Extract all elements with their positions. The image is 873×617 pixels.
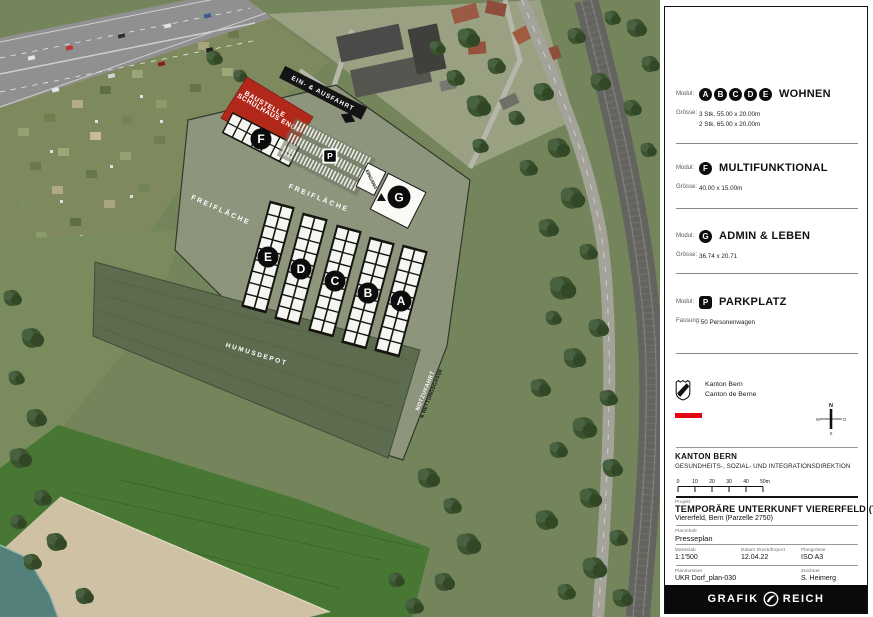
size-line: 50 Personenwagen [701,318,755,328]
brand-right: REICH [783,593,825,605]
legend-panel: Modul: A B C D E WOHNEN Grösse: 3 Stk. 5… [664,6,868,614]
plan-number-label: Plannummer [675,568,703,573]
titleblock-divider [676,565,858,566]
author-value: S. Heimerg [801,575,836,582]
badge-e: E [759,88,772,101]
svg-text:B: B [364,286,373,300]
modul-label: Modul: [676,165,699,171]
content-label: Planinhalt [675,528,697,533]
author-label: Zeichner [801,568,820,573]
project-subtitle: Viererfeld, Bern (Parzelle 2750) [675,515,773,522]
scale-bar: 0 10 20 30 40 50m [675,477,785,494]
scale-value: 1:1'500 [675,554,698,561]
badge-d: D [744,88,757,101]
svg-text:E: E [264,250,272,264]
panel-divider [676,447,858,448]
svg-text:O: O [843,417,847,422]
fassung-label: Fassung: [676,318,701,328]
size-line: 40.00 x 15.00m [699,184,742,194]
svg-text:20: 20 [709,479,715,485]
svg-text:P: P [327,151,333,161]
grafikreich-logo-icon [763,591,779,607]
kanton-bern-line1: Kanton Bern [705,380,756,390]
module-marker-e: E [258,247,279,268]
agency-department: GESUNDHEITS-, SOZIAL- UND INTEGRATIONSDI… [675,463,850,470]
section-title-multifunktional: MULTIFUNKTIONAL [719,162,828,174]
section-title-parkplatz: PARKPLATZ [719,296,787,308]
plan-number-value: UKR Dorf_plan-030 [675,575,736,582]
groesse-label: Grösse: [676,184,699,194]
svg-text:S: S [830,431,833,436]
module-marker-f: F [251,129,272,150]
badge-p: P [699,296,712,309]
kanton-bern-line2: Canton de Berne [705,390,756,400]
date-label: Datum Druck/Export [741,547,785,552]
svg-text:40: 40 [743,479,749,485]
modul-label: Modul: [676,233,699,239]
titleblock-divider [676,525,858,526]
legend-section-admin: Modul: G ADMIN & LEBEN Grösse: 36.74 x 2… [676,229,858,262]
agency-name: KANTON BERN [675,452,737,461]
size-line: 2 Stk. 65.00 x 20.00m [699,120,760,130]
legend-section-multifunktional: Modul: F MULTIFUNKTIONAL Grösse: 40.00 x… [676,161,858,194]
site-plan-map: BAUSTELLE SCHULHAUS ENGE EIN- & AUSFAHRT [0,0,660,617]
kanton-red-bar [675,413,702,418]
size-line: 36.74 x 20.71 [699,252,737,262]
brand-left: GRAFIK [708,593,759,605]
titleblock-divider [676,544,858,545]
kanton-bern-wordmark: Kanton Bern Canton de Berne [705,380,756,400]
badge-g: G [699,230,712,243]
footer-brand-bar: GRAFIK REICH [665,585,867,613]
legend-divider [676,143,858,144]
module-marker-b: B [358,283,379,304]
size-label: Plangrösse [801,547,826,552]
badge-c: C [729,88,742,101]
module-marker-a: A [391,291,412,312]
svg-text:10: 10 [692,479,698,485]
groesse-label: Grösse: [676,252,699,262]
content-value: Presseplan [675,534,713,543]
svg-text:0: 0 [677,479,680,485]
svg-text:N: N [829,403,833,409]
modul-label: Modul: [676,91,699,97]
badge-a: A [699,88,712,101]
legend-divider [676,208,858,209]
svg-text:A: A [397,294,406,308]
legend-divider [676,353,858,354]
legend-section-wohnen: Modul: A B C D E WOHNEN Grösse: 3 Stk. 5… [676,87,858,130]
section-title-wohnen: WOHNEN [779,88,831,100]
module-marker-c: C [325,271,346,292]
compass-icon: N W O S [815,401,847,437]
svg-text:W: W [816,417,820,422]
module-marker-d: D [291,259,312,280]
svg-text:50m: 50m [760,479,770,485]
size-line: 3 Stk. 55.00 x 20.00m [699,110,760,120]
legend-section-parkplatz: Modul: P PARKPLATZ Fassung: 50 Personenw… [676,295,858,328]
project-title: TEMPORÄRE UNTERKUNFT VIERERFELD (TUV) [675,504,873,514]
svg-text:D: D [297,262,306,276]
badge-b: B [714,88,727,101]
module-marker-g: G [388,186,411,209]
svg-text:G: G [394,190,403,204]
badge-f: F [699,162,712,175]
scale-label: Massstab [675,547,696,552]
svg-text:F: F [257,132,264,146]
kanton-bern-crest-icon [675,379,691,401]
legend-divider [676,273,858,274]
section-title-admin: ADMIN & LEBEN [719,230,810,242]
size-value: ISO A3 [801,554,823,561]
groesse-label: Grösse: [676,110,699,130]
titleblock-divider [676,496,858,498]
modul-label: Modul: [676,299,699,305]
svg-text:30: 30 [726,479,732,485]
svg-text:C: C [331,274,340,288]
module-marker-p: P [323,149,338,164]
press-plan-page: BAUSTELLE SCHULHAUS ENGE EIN- & AUSFAHRT [0,0,873,617]
date-value: 12.04.22 [741,554,768,561]
